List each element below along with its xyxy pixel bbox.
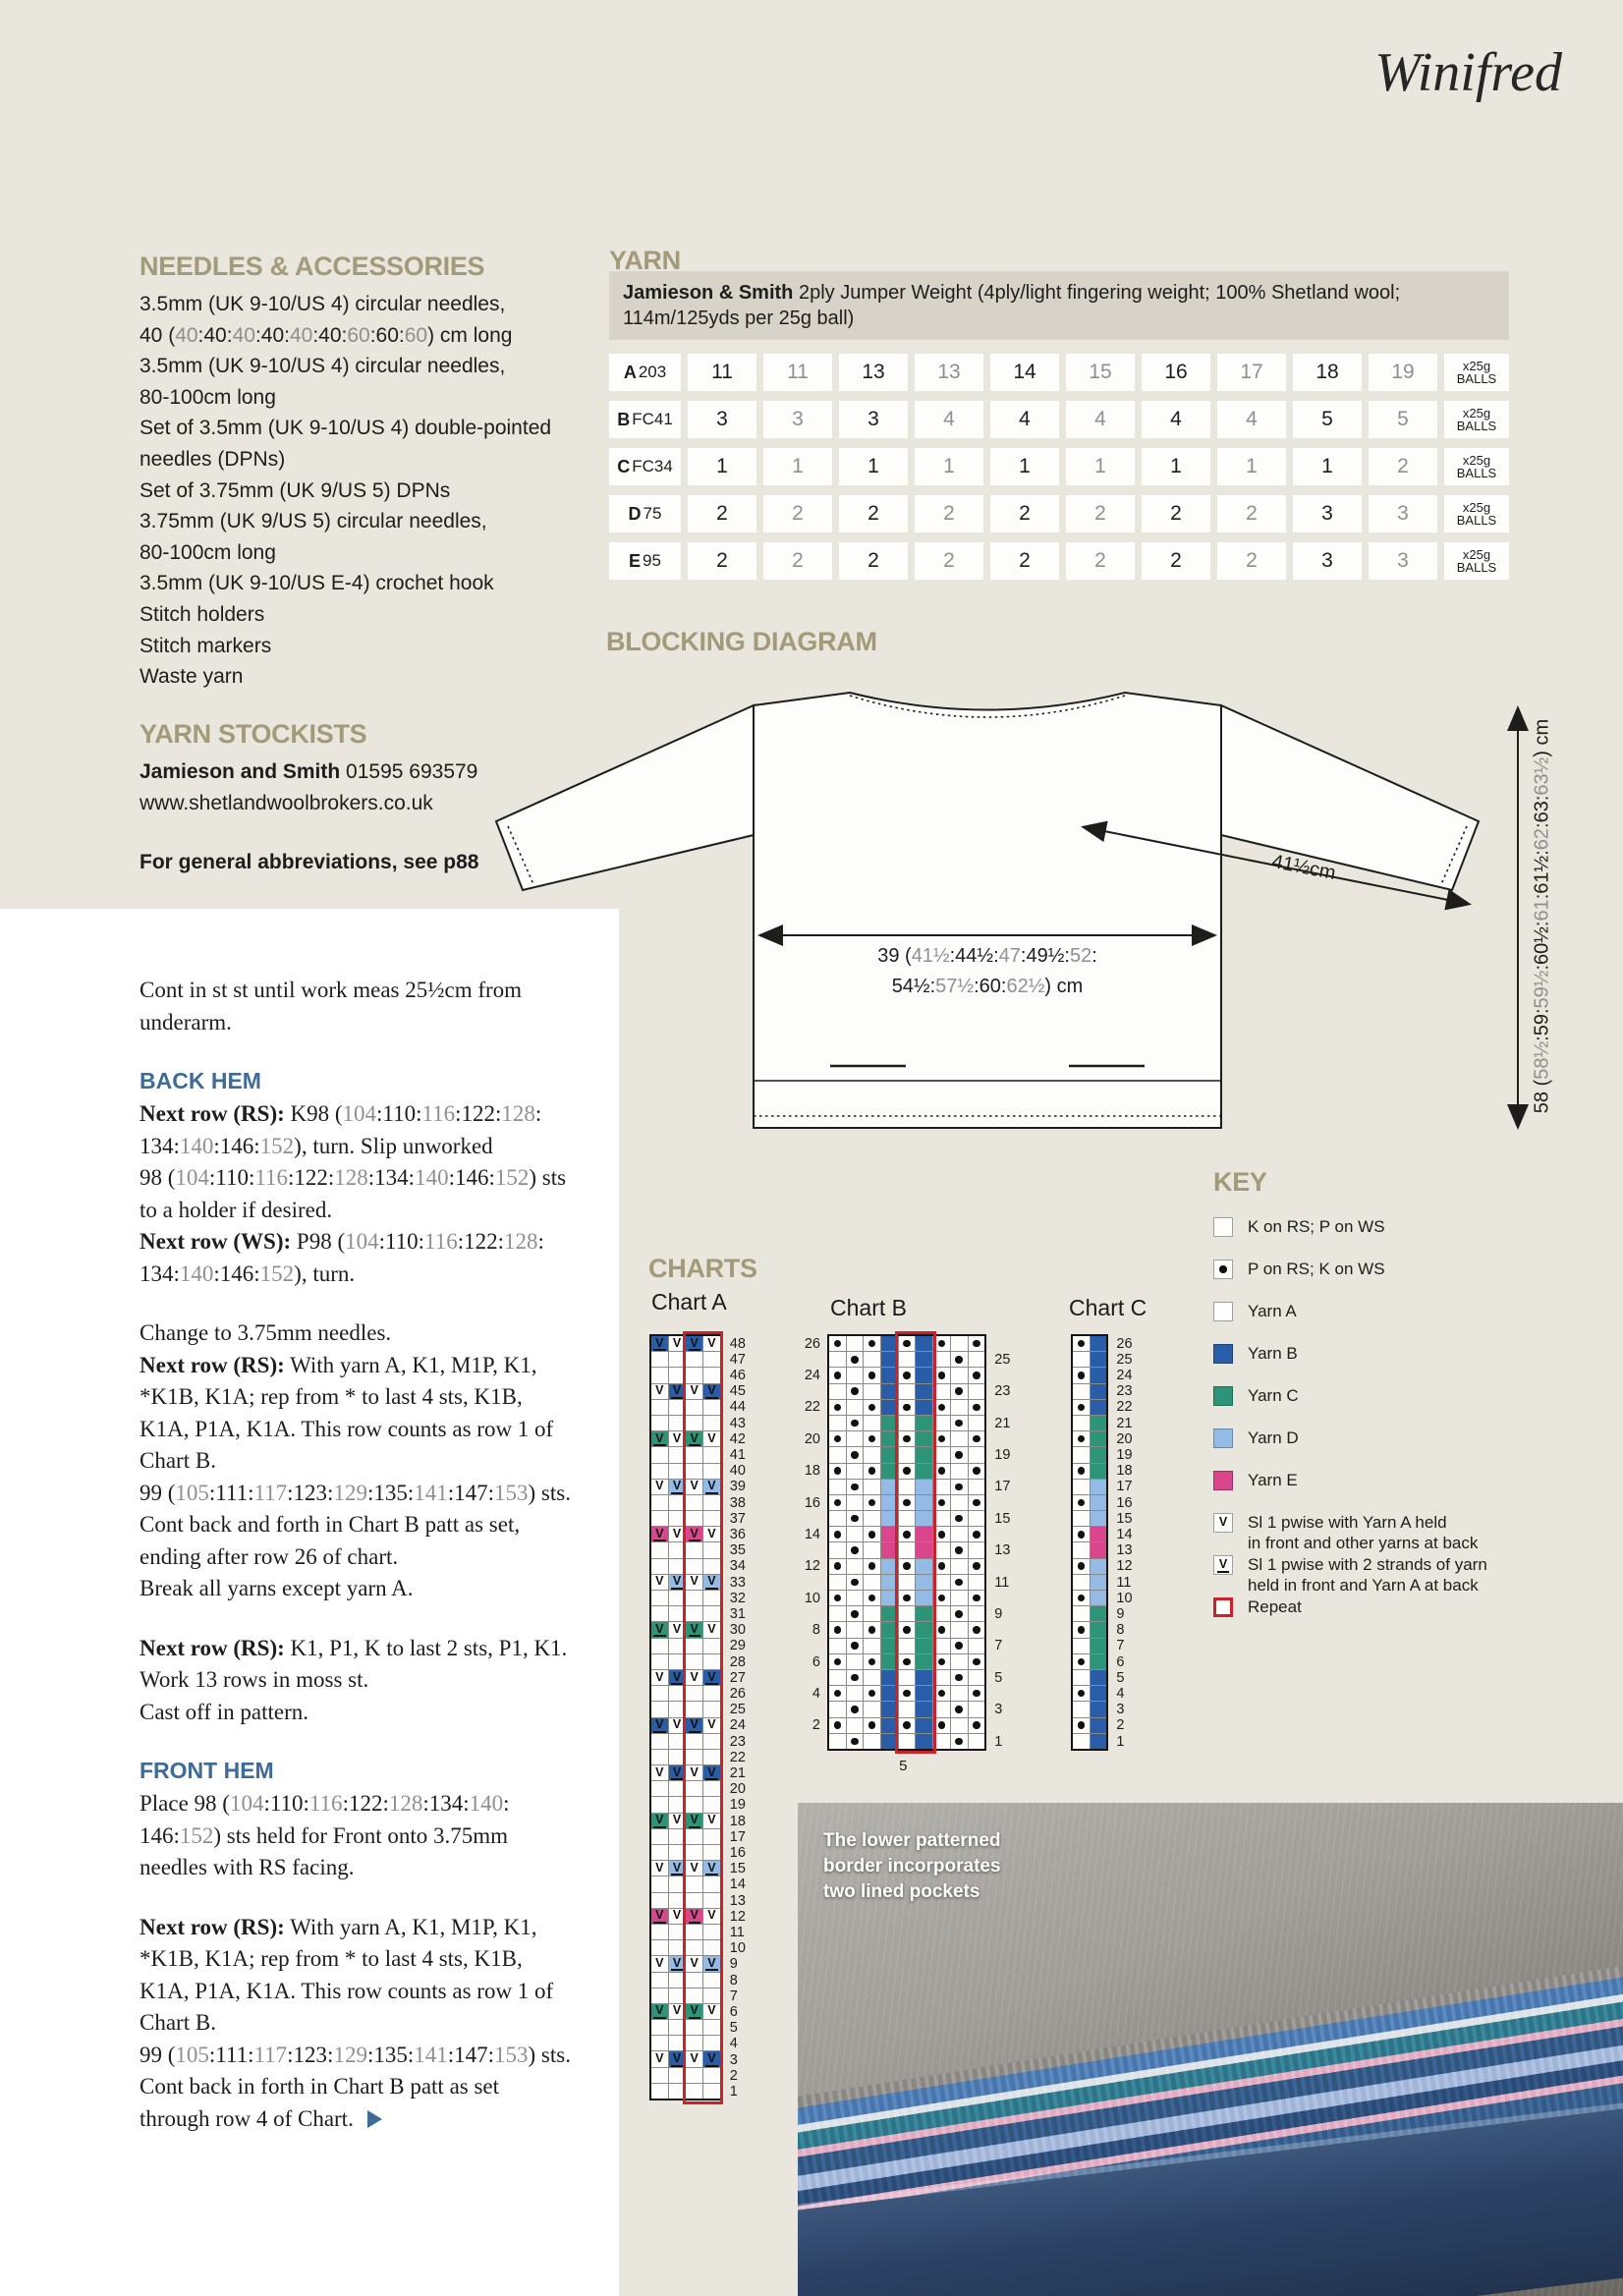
chart-cell	[899, 1384, 916, 1399]
chart-cell	[951, 1416, 968, 1430]
chart-cell	[651, 1797, 668, 1812]
purl-dot	[938, 1404, 946, 1412]
chart-cell	[933, 1400, 950, 1415]
chart-cell	[847, 1400, 864, 1415]
row-number: 7	[994, 1639, 1028, 1653]
slip-2-strands-symbol: V	[689, 1337, 700, 1351]
chart-cell	[1091, 1606, 1107, 1621]
chart-cell	[847, 1464, 864, 1479]
chart-cell	[881, 1416, 898, 1430]
row-number: 9	[994, 1607, 1028, 1622]
chart-cell	[651, 1988, 668, 2003]
chart-cell	[1073, 1495, 1090, 1510]
chart-cell	[881, 1591, 898, 1605]
purl-dot	[903, 1404, 911, 1412]
chart-cell: V	[651, 1336, 668, 1351]
row-number: 18	[787, 1464, 820, 1479]
chart-cell	[686, 1591, 702, 1605]
chart-cell	[881, 1431, 898, 1446]
chart-cell	[829, 1654, 846, 1669]
chart-cell	[669, 1639, 686, 1653]
chart-cell	[686, 1988, 702, 2003]
chart-cell: V	[703, 1336, 720, 1351]
row-number: 20	[787, 1432, 820, 1447]
chart-cell	[969, 1718, 985, 1733]
chart-cell	[686, 1606, 702, 1621]
slip-yarnA-symbol: V	[689, 1862, 700, 1876]
key-item-label: Yarn B	[1248, 1343, 1298, 1364]
slip-yarnA-symbol: V	[705, 1814, 717, 1827]
chart-cell	[686, 1734, 702, 1749]
yarn-ball-count: 4	[1217, 401, 1286, 438]
chart-cell	[916, 1606, 932, 1621]
chart-cell	[651, 1559, 668, 1574]
row-number: 28	[730, 1655, 763, 1670]
chart-cell	[829, 1464, 846, 1479]
purl-dot	[903, 1372, 911, 1379]
purl-dot	[834, 1595, 842, 1602]
row-number: 34	[730, 1559, 763, 1574]
row-number: 35	[730, 1543, 763, 1558]
chart-cell	[951, 1639, 968, 1653]
slip-2-strands-symbol: V	[689, 1718, 700, 1732]
yarn-unit: x25gBALLS	[1444, 542, 1509, 580]
purl-dot	[1078, 1595, 1086, 1602]
chart-cell	[899, 1447, 916, 1462]
chart-cell: V	[703, 2051, 720, 2066]
chart-cell	[916, 1416, 932, 1430]
purl-dot	[1078, 1562, 1086, 1570]
chart-cell	[969, 1368, 985, 1382]
purl-dot	[938, 1721, 946, 1729]
purl-dot	[834, 1721, 842, 1729]
chart-cell	[916, 1670, 932, 1685]
purl-dot	[834, 1562, 842, 1570]
chart-cell	[651, 1829, 668, 1844]
purl-dot	[1078, 1372, 1086, 1379]
chart-cell	[1091, 1686, 1107, 1701]
chart-cell	[969, 1495, 985, 1510]
chart-cell	[847, 1622, 864, 1637]
chart-cell	[847, 1639, 864, 1653]
row-number: 2	[1116, 1718, 1149, 1733]
key-item-label: P on RS; K on WS	[1248, 1259, 1385, 1279]
slip-2-strands-symbol: V	[653, 2004, 665, 2018]
chart-cell	[651, 2020, 668, 2035]
chart-cell	[1091, 1480, 1107, 1494]
chart-cell: V	[686, 1575, 702, 1590]
purl-dot	[868, 1721, 876, 1729]
slip-2-strands-symbol: V	[671, 1957, 683, 1971]
yarn-ball-count: 13	[839, 354, 908, 391]
chart-cell	[1091, 1384, 1107, 1399]
yarn-ball-count: 3	[1369, 542, 1437, 580]
chart-cell	[951, 1591, 968, 1605]
yarn-ball-count: 3	[1369, 495, 1437, 532]
chart-cell	[686, 1511, 702, 1526]
pattern-paragraph: Next row (RS): K98 (104:110:116:122:128:…	[140, 1098, 552, 1290]
chart-cell	[864, 1416, 880, 1430]
chart-cell	[899, 1654, 916, 1669]
chart-cell	[969, 1447, 985, 1462]
chart-cell	[847, 1542, 864, 1557]
chart-cell: V	[686, 1909, 702, 1924]
row-number: 37	[730, 1512, 763, 1527]
row-number: 24	[787, 1369, 820, 1383]
chart-cell	[864, 1352, 880, 1367]
chart-cell	[864, 1702, 880, 1716]
slip-yarnA-symbol: V	[705, 1718, 717, 1732]
chart-cell: V	[651, 1909, 668, 1924]
row-number: 14	[1116, 1528, 1149, 1542]
row-number: 42	[730, 1432, 763, 1447]
chart-cell	[847, 1686, 864, 1701]
chart-cell	[669, 1352, 686, 1367]
slip-yarnA-symbol: V	[671, 1337, 683, 1351]
row-number: 30	[730, 1623, 763, 1638]
purl-dot	[903, 1467, 911, 1475]
chart-cell	[829, 1542, 846, 1557]
row-number: 16	[787, 1496, 820, 1511]
row-number: 32	[730, 1592, 763, 1606]
row-number: 4	[787, 1687, 820, 1702]
chart-cell	[899, 1686, 916, 1701]
chart-cell	[933, 1368, 950, 1382]
pattern-paragraph: Change to 3.75mm needles.Next row (RS): …	[140, 1317, 552, 1605]
chart-cell	[899, 1542, 916, 1557]
chart-cell: V	[686, 1431, 702, 1446]
chart-cell	[881, 1527, 898, 1541]
chart-cell	[651, 1606, 668, 1621]
chart-cell: V	[686, 1861, 702, 1876]
chart-cell: V	[651, 1814, 668, 1828]
slip-2-strands-symbol: V	[671, 1766, 683, 1780]
row-number: 4	[730, 2037, 763, 2051]
chart-cell: V	[686, 1956, 702, 1971]
yarn-table: A20311111313141516171819x25gBALLSBFC4133…	[609, 354, 1509, 580]
chart-cell	[703, 1495, 720, 1510]
chart-cell	[951, 1527, 968, 1541]
purl-dot	[868, 1467, 876, 1475]
chart-cell	[703, 1352, 720, 1367]
chart-cell	[1073, 1416, 1090, 1430]
slip-yarnA-symbol: V	[671, 1623, 683, 1637]
chart-cell	[651, 1511, 668, 1526]
chart-cell	[1091, 1495, 1107, 1510]
slip-2-strands-symbol: V	[653, 1718, 665, 1732]
chart-cell	[916, 1654, 932, 1669]
purl-dot	[868, 1690, 876, 1698]
chart-cell	[651, 1876, 668, 1891]
slip-yarnA-symbol: V	[653, 1862, 665, 1876]
chart-cell	[916, 1447, 932, 1462]
chart-cell	[651, 1781, 668, 1796]
chart-cell	[703, 1591, 720, 1605]
purl-dot	[938, 1658, 946, 1666]
purl-dot	[868, 1435, 876, 1443]
chart-cell	[916, 1718, 932, 1733]
purl-dot	[851, 1610, 859, 1618]
chart-cell	[703, 1639, 720, 1653]
yarn-ball-count: 11	[763, 354, 832, 391]
purl-dot	[903, 1721, 911, 1729]
slip-yarnA-symbol: V	[689, 1766, 700, 1780]
row-number: 26	[787, 1337, 820, 1352]
slip-yarnA-symbol: V	[689, 1480, 700, 1493]
chart-cell	[916, 1431, 932, 1446]
chart-cell	[829, 1480, 846, 1494]
row-number: 44	[730, 1400, 763, 1415]
chart-cell	[899, 1670, 916, 1685]
row-number: 11	[730, 1926, 763, 1940]
chart-cell: V	[703, 1384, 720, 1399]
yarn-row-label: A203	[609, 354, 681, 391]
row-number: 43	[730, 1417, 763, 1431]
chart-cell	[1073, 1575, 1090, 1590]
purl-dot	[868, 1595, 876, 1602]
key-item-label: Repeat	[1248, 1596, 1302, 1617]
chart-cell	[686, 1368, 702, 1382]
chart-cell	[703, 1940, 720, 1955]
row-number: 21	[994, 1417, 1028, 1431]
slip-yarnA-symbol: V	[671, 1432, 683, 1446]
row-number: 46	[730, 1369, 763, 1383]
chart-cell: V	[686, 1718, 702, 1733]
slip-2-strands-symbol: V	[671, 2052, 683, 2066]
chart-cell	[916, 1352, 932, 1367]
chart-cell	[969, 1622, 985, 1637]
chart-cell: V	[651, 2051, 668, 2066]
key-item-label: Yarn A	[1248, 1301, 1297, 1321]
chart-cell	[881, 1336, 898, 1351]
pattern-paragraph: Next row (RS): With yarn A, K1, M1P, K1,…	[140, 1912, 552, 2136]
pattern-paragraph: Place 98 (104:110:116:122:128:134:140:14…	[140, 1788, 552, 1884]
slip-2-strands-symbol: V	[653, 1337, 665, 1351]
chart-cell	[933, 1416, 950, 1430]
chart-cell	[651, 1416, 668, 1430]
chart-cell	[1073, 1654, 1090, 1669]
row-number: 18	[730, 1815, 763, 1829]
chart-cell	[686, 1400, 702, 1415]
chart-cell	[881, 1606, 898, 1621]
chart-cell	[1073, 1464, 1090, 1479]
yarn-ball-count: 4	[1142, 401, 1210, 438]
chart-cell	[969, 1336, 985, 1351]
purl-dot	[851, 1515, 859, 1523]
chart-cell	[686, 1702, 702, 1716]
row-number: 19	[730, 1798, 763, 1813]
chart-cell	[933, 1336, 950, 1351]
chart-cell	[669, 1988, 686, 2003]
purl-dot	[973, 1404, 980, 1412]
purl-dot	[903, 1340, 911, 1348]
chart-cell	[864, 1368, 880, 1382]
row-number: 25	[1116, 1353, 1149, 1368]
chart-cell	[669, 1702, 686, 1716]
row-number: 3	[994, 1703, 1028, 1717]
chart-cell: V	[703, 1718, 720, 1733]
chart-cell	[881, 1654, 898, 1669]
chart-cell: V	[686, 1384, 702, 1399]
chart-cell	[651, 1702, 668, 1716]
chart-cell: V	[651, 1527, 668, 1541]
purl-dot	[955, 1387, 963, 1395]
chart-cell	[899, 1416, 916, 1430]
chart-cell	[933, 1718, 950, 1733]
yarn-ball-count: 1	[990, 448, 1059, 485]
chart-cell	[1073, 1511, 1090, 1526]
chart-cell	[847, 1480, 864, 1494]
chart-cell	[881, 1702, 898, 1716]
purl-dot	[834, 1531, 842, 1539]
chart-cell	[703, 1988, 720, 2003]
chart-cell: V	[651, 2004, 668, 2019]
purl-dot	[1078, 1499, 1086, 1507]
purl-dot	[955, 1515, 963, 1523]
chart-cell	[686, 1893, 702, 1908]
chart-cell: V	[651, 1670, 668, 1685]
yarn-ball-count: 2	[1369, 448, 1437, 485]
chart-cell	[864, 1384, 880, 1399]
chart-cell	[899, 1336, 916, 1351]
chart-b-grid: 2625242322212019181716151413121110987654…	[827, 1334, 986, 1751]
yarn-ball-count: 4	[1066, 401, 1135, 438]
slip-yarnA-symbol: V	[689, 1384, 700, 1398]
key-item: Yarn D	[1213, 1428, 1587, 1470]
chart-cell	[703, 2068, 720, 2083]
chart-cell	[651, 2068, 668, 2083]
chart-cell	[829, 1447, 846, 1462]
chart-cell	[703, 1876, 720, 1891]
chart-cell	[847, 1511, 864, 1526]
chart-cell	[847, 1527, 864, 1541]
yarn-ball-count: 5	[1293, 401, 1362, 438]
yarn-ball-count: 2	[763, 542, 832, 580]
row-number: 17	[1116, 1480, 1149, 1494]
chart-cell	[829, 1384, 846, 1399]
chart-cell	[969, 1670, 985, 1685]
chart-cell	[969, 1559, 985, 1574]
chart-cell	[829, 1368, 846, 1382]
chart-cell	[933, 1495, 950, 1510]
chart-cell: V	[703, 1622, 720, 1637]
chart-cell	[933, 1606, 950, 1621]
row-number: 7	[730, 1989, 763, 2004]
stitch-number: 5	[899, 1758, 907, 1774]
chart-cell	[651, 2084, 668, 2099]
row-number: 1	[1116, 1735, 1149, 1750]
chart-cell	[969, 1400, 985, 1415]
chart-cell	[703, 1781, 720, 1796]
key-item-label: Sl 1 pwise with Yarn A heldin front and …	[1248, 1512, 1478, 1553]
yarn-description: Jamieson & Smith 2ply Jumper Weight (4pl…	[609, 271, 1509, 340]
chart-cell	[969, 1606, 985, 1621]
purl-dot	[903, 1435, 911, 1443]
yarn-ball-count: 5	[1369, 401, 1437, 438]
chart-cell	[933, 1559, 950, 1574]
chart-cell	[933, 1511, 950, 1526]
chart-cell	[916, 1336, 932, 1351]
chart-cell	[951, 1480, 968, 1494]
chart-cell	[847, 1495, 864, 1510]
chart-cell	[916, 1384, 932, 1399]
row-number: 13	[1116, 1543, 1149, 1558]
chart-cell	[1091, 1559, 1107, 1574]
row-number: 24	[730, 1718, 763, 1733]
chart-cell	[951, 1734, 968, 1749]
chart-cell: V	[669, 1336, 686, 1351]
chart-cell	[969, 1639, 985, 1653]
chart-cell	[864, 1495, 880, 1510]
chart-cell	[951, 1384, 968, 1399]
slip-yarnA-symbol: V	[653, 1480, 665, 1493]
chart-cell	[1073, 1622, 1090, 1637]
slip-2-strands-symbol: V	[671, 1384, 683, 1398]
chart-cell	[651, 1464, 668, 1479]
chart-cell	[933, 1734, 950, 1749]
chart-cell	[847, 1352, 864, 1367]
purl-dot	[868, 1658, 876, 1666]
chart-cell: V	[686, 1480, 702, 1494]
purl-dot	[851, 1420, 859, 1428]
chart-cell	[881, 1511, 898, 1526]
chart-cell	[669, 1542, 686, 1557]
purl-dot	[834, 1499, 842, 1507]
chart-cell	[829, 1336, 846, 1351]
chart-cell	[951, 1559, 968, 1574]
purl-dot	[973, 1595, 980, 1602]
chart-cell	[847, 1654, 864, 1669]
row-number: 14	[787, 1528, 820, 1542]
chart-cell	[951, 1606, 968, 1621]
chart-cell	[686, 1654, 702, 1669]
slip-yarnA-symbol: V	[705, 1623, 717, 1637]
chart-cell: V	[703, 1861, 720, 1876]
chart-cell: V	[669, 1956, 686, 1971]
chart-cell	[933, 1702, 950, 1716]
chart-cell	[864, 1527, 880, 1541]
chart-cell: V	[651, 1861, 668, 1876]
chart-cell	[651, 1352, 668, 1367]
chart-cell	[1091, 1718, 1107, 1733]
chart-cell	[1073, 1702, 1090, 1716]
chart-cell	[669, 1606, 686, 1621]
row-number: 24	[1116, 1369, 1149, 1383]
chart-cell	[703, 1447, 720, 1462]
chart-cell	[1073, 1542, 1090, 1557]
chart-cell	[686, 1750, 702, 1764]
key-item: Yarn C	[1213, 1385, 1587, 1428]
chart-cell	[864, 1542, 880, 1557]
purl-dot	[955, 1451, 963, 1459]
purl-dot	[851, 1738, 859, 1746]
chart-cell	[916, 1591, 932, 1605]
key-item: K on RS; P on WS	[1213, 1216, 1587, 1259]
chart-cell	[1091, 1654, 1107, 1669]
slip-2-strands-symbol: V	[653, 1814, 665, 1827]
row-number: 25	[994, 1353, 1028, 1368]
purl-dot	[955, 1706, 963, 1713]
yarn-unit: x25gBALLS	[1444, 495, 1509, 532]
chart-cell	[829, 1734, 846, 1749]
slip-2-strands-symbol: V	[689, 1623, 700, 1637]
yarn-ball-count: 13	[915, 354, 983, 391]
row-number: 17	[730, 1830, 763, 1845]
chart-cell	[703, 1686, 720, 1701]
yarn-ball-count: 18	[1293, 354, 1362, 391]
chart-cell	[829, 1702, 846, 1716]
chart-cell	[669, 1781, 686, 1796]
